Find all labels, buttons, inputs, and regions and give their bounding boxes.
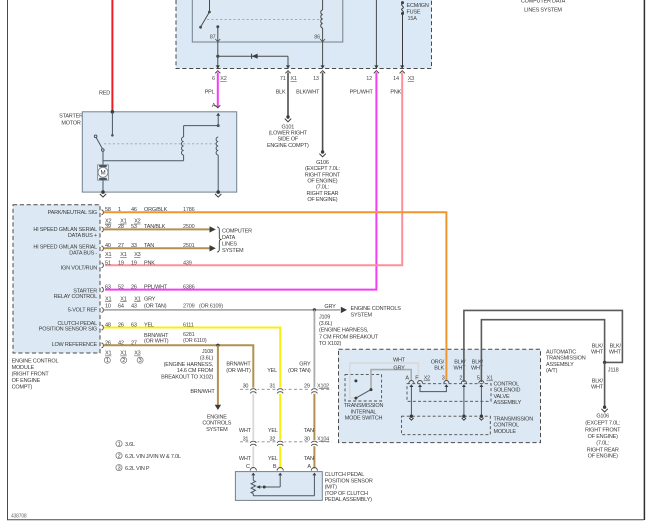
svg-text:RIGHT FRONT: RIGHT FRONT xyxy=(585,427,621,433)
svg-text:X102: X102 xyxy=(317,383,329,389)
svg-text:BLK: BLK xyxy=(276,90,286,96)
svg-text:BLK/: BLK/ xyxy=(610,344,622,350)
svg-text:PEDAL ASSEMBLY): PEDAL ASSEMBLY) xyxy=(325,497,372,503)
svg-text:(3.6L): (3.6L) xyxy=(200,356,214,362)
svg-text:X1: X1 xyxy=(290,76,296,82)
svg-text:(EXCEPT 7.0L:: (EXCEPT 7.0L: xyxy=(305,166,341,172)
svg-text:INTERNAL: INTERNAL xyxy=(351,409,377,415)
svg-text:2709: 2709 xyxy=(183,304,195,310)
svg-text:J109: J109 xyxy=(319,314,330,320)
svg-text:RED: RED xyxy=(99,91,110,97)
svg-text:WHT: WHT xyxy=(609,350,622,356)
svg-text:OF ENGINE): OF ENGINE) xyxy=(588,454,618,460)
svg-text:DATA BUS +: DATA BUS + xyxy=(68,233,97,239)
svg-text:(A/T): (A/T) xyxy=(546,368,558,374)
svg-text:6.2L VIN J/VIN W & 7.0L: 6.2L VIN J/VIN W & 7.0L xyxy=(125,454,181,460)
svg-text:PPL/WHT: PPL/WHT xyxy=(144,285,168,291)
svg-text:STARTER: STARTER xyxy=(59,114,83,120)
svg-text:3.6L: 3.6L xyxy=(125,442,135,448)
svg-text:DATA: DATA xyxy=(222,235,236,241)
svg-text:X3: X3 xyxy=(134,252,140,258)
svg-text:ENGINE COMPT): ENGINE COMPT) xyxy=(267,143,309,149)
svg-text:2501: 2501 xyxy=(183,243,195,249)
svg-text:39: 39 xyxy=(105,224,111,230)
svg-text:CLUTCH PEDAL: CLUTCH PEDAL xyxy=(325,472,365,478)
svg-text:OF ENGINE): OF ENGINE) xyxy=(307,197,337,203)
svg-text:32: 32 xyxy=(269,436,275,442)
svg-text:TAN/BLK: TAN/BLK xyxy=(144,224,166,230)
svg-text:X1: X1 xyxy=(105,252,111,258)
svg-text:2: 2 xyxy=(459,376,462,382)
svg-text:BLK: BLK xyxy=(434,366,444,372)
svg-text:TAN: TAN xyxy=(304,428,314,434)
svg-text:A: A xyxy=(307,464,311,470)
svg-text:31: 31 xyxy=(243,436,249,442)
svg-text:X3: X3 xyxy=(134,351,140,357)
svg-text:19: 19 xyxy=(131,260,137,266)
svg-text:MODE SWITCH: MODE SWITCH xyxy=(345,416,383,422)
svg-text:(OR 6109): (OR 6109) xyxy=(199,304,223,310)
svg-text:(7.0L:: (7.0L: xyxy=(596,441,610,447)
svg-text:5: 5 xyxy=(477,376,480,382)
svg-text:SYSTEM: SYSTEM xyxy=(351,312,373,318)
svg-text:A: A xyxy=(405,376,409,382)
svg-text:33: 33 xyxy=(131,243,137,249)
svg-text:5-VOLT REF: 5-VOLT REF xyxy=(68,308,98,314)
svg-text:14: 14 xyxy=(393,76,399,82)
svg-text:28: 28 xyxy=(118,224,124,230)
svg-text:48: 48 xyxy=(105,322,111,328)
svg-text:VALVE: VALVE xyxy=(494,394,510,400)
svg-text:OF ENGINE): OF ENGINE) xyxy=(307,179,337,185)
svg-text:RIGHT REAR: RIGHT REAR xyxy=(587,447,619,453)
svg-text:6: 6 xyxy=(212,76,215,82)
svg-text:(EXCEPT 7.0L:: (EXCEPT 7.0L: xyxy=(585,421,621,427)
svg-text:71: 71 xyxy=(280,76,286,82)
svg-text:ENGINE CONTROLS: ENGINE CONTROLS xyxy=(351,306,402,312)
svg-text:MOTOR: MOTOR xyxy=(61,121,81,127)
svg-text:10: 10 xyxy=(105,304,111,310)
svg-text:BRN/WHT: BRN/WHT xyxy=(190,389,215,395)
svg-text:1: 1 xyxy=(106,358,109,364)
svg-text:COMPUTER DATA: COMPUTER DATA xyxy=(521,0,566,4)
svg-text:BLK/: BLK/ xyxy=(592,344,604,350)
svg-text:YEL: YEL xyxy=(144,322,154,328)
svg-text:(OR TAN): (OR TAN) xyxy=(288,368,311,374)
svg-text:X1: X1 xyxy=(105,296,111,302)
svg-text:YEL: YEL xyxy=(268,456,278,462)
svg-text:RIGHT FRONT: RIGHT FRONT xyxy=(305,172,341,178)
svg-text:(7.0L:: (7.0L: xyxy=(316,185,330,191)
svg-text:PPL: PPL xyxy=(205,90,215,96)
svg-text:1: 1 xyxy=(118,441,121,447)
svg-text:6386: 6386 xyxy=(183,285,195,291)
svg-text:G106: G106 xyxy=(596,414,609,420)
svg-text:ORG/: ORG/ xyxy=(431,359,445,365)
svg-text:M: M xyxy=(101,170,106,177)
svg-text:26: 26 xyxy=(118,322,124,328)
svg-text:CONTROL: CONTROL xyxy=(494,423,520,429)
svg-text:A: A xyxy=(212,103,216,109)
svg-text:19: 19 xyxy=(118,260,124,266)
svg-text:X1: X1 xyxy=(134,296,140,302)
svg-text:13: 13 xyxy=(313,76,319,82)
svg-text:87: 87 xyxy=(210,35,216,41)
svg-text:TRANSMISSION: TRANSMISSION xyxy=(494,416,534,422)
svg-text:(3.6L): (3.6L) xyxy=(319,321,333,327)
svg-text:52: 52 xyxy=(118,285,124,291)
svg-text:51: 51 xyxy=(105,260,111,266)
svg-text:CONTROL: CONTROL xyxy=(494,382,520,388)
svg-text:CONTROLS: CONTROLS xyxy=(202,421,231,427)
svg-text:COMPUTER: COMPUTER xyxy=(222,228,252,234)
svg-text:64: 64 xyxy=(118,304,124,310)
svg-text:30: 30 xyxy=(243,383,249,389)
svg-text:ORG/BLK: ORG/BLK xyxy=(144,207,168,213)
svg-text:ECM/IGN: ECM/IGN xyxy=(407,3,429,9)
svg-text:X1: X1 xyxy=(105,351,111,357)
svg-text:TRANSMISSION: TRANSMISSION xyxy=(546,356,586,362)
svg-text:12: 12 xyxy=(366,76,372,82)
svg-text:GRY: GRY xyxy=(324,304,336,310)
svg-text:ENGINE CONTROL: ENGINE CONTROL xyxy=(12,359,59,365)
svg-text:X1: X1 xyxy=(120,351,126,357)
svg-text:14.6 CM FROM: 14.6 CM FROM xyxy=(177,368,214,374)
svg-text:GRY: GRY xyxy=(393,365,405,371)
svg-text:(ENGINE HARNESS,: (ENGINE HARNESS, xyxy=(319,328,369,334)
svg-text:1: 1 xyxy=(118,207,121,213)
svg-text:ENGINE: ENGINE xyxy=(207,414,227,420)
svg-text:(OR TAN): (OR TAN) xyxy=(144,304,167,310)
svg-text:IGN VOLT/RUN: IGN VOLT/RUN xyxy=(61,265,98,271)
svg-text:2: 2 xyxy=(118,453,121,459)
svg-text:OF ENGINE): OF ENGINE) xyxy=(588,434,618,440)
svg-text:GRY: GRY xyxy=(144,296,156,302)
svg-text:2500: 2500 xyxy=(183,224,195,230)
svg-text:7 CM FROM BREAKOUT: 7 CM FROM BREAKOUT xyxy=(319,334,379,340)
svg-text:86: 86 xyxy=(314,35,320,41)
svg-text:AUTOMATIC: AUTOMATIC xyxy=(546,349,576,355)
svg-text:X3: X3 xyxy=(408,76,414,82)
svg-text:(M/T): (M/T) xyxy=(325,485,338,491)
svg-text:SIDE OF: SIDE OF xyxy=(277,137,298,143)
svg-text:GRY: GRY xyxy=(299,362,311,368)
svg-text:YEL: YEL xyxy=(267,368,277,374)
svg-text:MODULE: MODULE xyxy=(494,429,517,435)
svg-text:30: 30 xyxy=(304,436,310,442)
svg-text:(ENGINE HARNESS,: (ENGINE HARNESS, xyxy=(164,362,214,368)
svg-text:TRANSMISSION: TRANSMISSION xyxy=(344,403,384,409)
svg-text:PNK: PNK xyxy=(390,90,401,96)
svg-text:(OR WHT): (OR WHT) xyxy=(144,339,169,345)
svg-text:DATA BUS -: DATA BUS - xyxy=(69,250,97,256)
svg-text:3: 3 xyxy=(139,358,142,364)
svg-text:TAN: TAN xyxy=(144,243,154,249)
svg-text:15A: 15A xyxy=(408,16,418,22)
svg-text:J108: J108 xyxy=(202,349,213,355)
svg-text:438708: 438708 xyxy=(11,514,27,520)
svg-text:6.2L VIN P: 6.2L VIN P xyxy=(125,466,150,472)
svg-text:X104: X104 xyxy=(317,436,329,442)
svg-text:1786: 1786 xyxy=(183,207,195,213)
svg-text:BREAKOUT TO X102): BREAKOUT TO X102) xyxy=(161,374,213,380)
svg-text:26: 26 xyxy=(131,285,137,291)
svg-text:C: C xyxy=(246,464,250,470)
svg-text:(RIGHT FRONT: (RIGHT FRONT xyxy=(12,372,50,378)
svg-text:POSITION SENSOR: POSITION SENSOR xyxy=(325,478,373,484)
svg-text:X2: X2 xyxy=(220,76,226,82)
svg-text:WHT: WHT xyxy=(393,358,406,364)
svg-text:ASSEMBLY: ASSEMBLY xyxy=(494,400,522,406)
svg-text:X2: X2 xyxy=(424,376,430,382)
svg-text:WHT: WHT xyxy=(591,385,604,391)
svg-text:J118: J118 xyxy=(608,368,619,374)
svg-text:40: 40 xyxy=(105,243,111,249)
svg-text:SYSTEM: SYSTEM xyxy=(206,427,228,433)
svg-text:WHT: WHT xyxy=(239,428,252,434)
svg-text:POSITION SENSOR SIG: POSITION SENSOR SIG xyxy=(39,327,97,333)
svg-text:PARK/NEUTRAL SIG: PARK/NEUTRAL SIG xyxy=(48,210,97,216)
svg-text:BLK/WHT: BLK/WHT xyxy=(296,90,320,96)
svg-text:MODULE: MODULE xyxy=(12,365,35,371)
svg-text:X1: X1 xyxy=(487,376,493,382)
svg-text:3: 3 xyxy=(118,465,121,471)
svg-text:PNK: PNK xyxy=(144,260,155,266)
svg-text:(TOP OF CLUTCH: (TOP OF CLUTCH xyxy=(325,491,368,497)
svg-text:3: 3 xyxy=(442,376,445,382)
svg-text:439: 439 xyxy=(183,260,192,266)
svg-text:BRN/WHT: BRN/WHT xyxy=(226,362,251,368)
svg-text:(OR WHT): (OR WHT) xyxy=(226,368,251,374)
svg-text:2: 2 xyxy=(122,358,125,364)
svg-text:6111: 6111 xyxy=(183,322,194,328)
svg-text:63: 63 xyxy=(105,285,111,291)
svg-text:RELAY CONTROL: RELAY CONTROL xyxy=(54,294,97,300)
svg-text:PPL/WHT: PPL/WHT xyxy=(350,90,374,96)
svg-text:29: 29 xyxy=(304,383,310,389)
svg-text:COMPT): COMPT) xyxy=(12,385,33,391)
svg-text:G106: G106 xyxy=(316,160,329,166)
svg-text:OF ENGINE: OF ENGINE xyxy=(12,378,41,384)
svg-text:WHT: WHT xyxy=(239,456,252,462)
svg-text:G101: G101 xyxy=(281,124,294,130)
svg-text:27: 27 xyxy=(118,243,124,249)
svg-text:X1: X1 xyxy=(120,252,126,258)
svg-text:53: 53 xyxy=(131,224,137,230)
svg-text:63: 63 xyxy=(131,322,137,328)
svg-text:ASSEMBLY: ASSEMBLY xyxy=(546,362,574,368)
svg-text:46: 46 xyxy=(131,207,137,213)
svg-text:(LOWER RIGHT: (LOWER RIGHT xyxy=(269,131,308,137)
svg-text:SYSTEM: SYSTEM xyxy=(222,248,244,254)
svg-text:(OR 6110): (OR 6110) xyxy=(183,338,207,344)
svg-text:TAN: TAN xyxy=(304,456,314,462)
svg-text:BLK/: BLK/ xyxy=(592,378,604,384)
svg-text:B: B xyxy=(273,464,277,470)
svg-text:LINES SYSTEM: LINES SYSTEM xyxy=(524,7,562,13)
svg-text:43: 43 xyxy=(131,304,137,310)
svg-text:31: 31 xyxy=(269,383,275,389)
svg-text:TO X102): TO X102) xyxy=(319,341,342,347)
svg-text:58: 58 xyxy=(105,207,111,213)
svg-text:FUSE: FUSE xyxy=(407,10,421,16)
svg-text:X1: X1 xyxy=(120,296,126,302)
svg-text:SOLENOID: SOLENOID xyxy=(494,388,521,394)
svg-text:WHT: WHT xyxy=(591,350,604,356)
svg-text:LINES: LINES xyxy=(222,241,237,247)
svg-text:YEL: YEL xyxy=(268,428,278,434)
svg-text:RIGHT REAR: RIGHT REAR xyxy=(306,191,338,197)
svg-text:LOW REFERENCE: LOW REFERENCE xyxy=(52,342,98,348)
